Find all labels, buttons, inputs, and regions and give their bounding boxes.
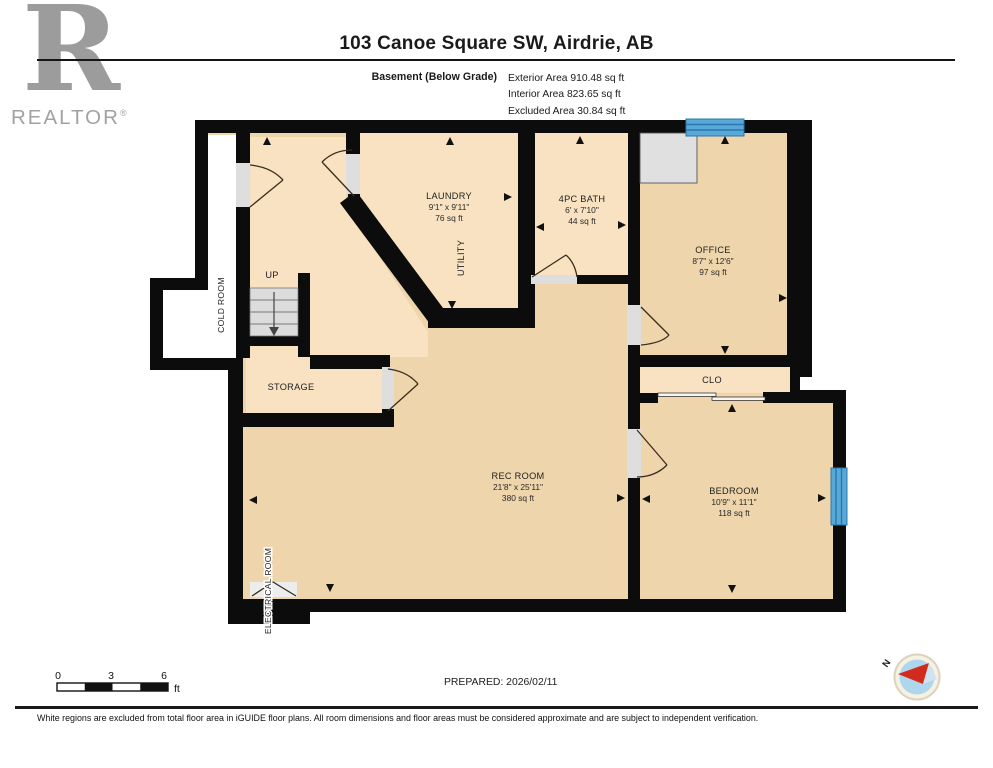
- stairs: [250, 288, 298, 336]
- prepared-date: PREPARED: 2026/02/11: [444, 677, 557, 688]
- exterior-area: Exterior Area 910.48 sq ft: [508, 71, 625, 87]
- compass-north-label: N: [880, 657, 893, 669]
- realtor-logo: R REALTOR®: [6, 0, 136, 140]
- scale-bar: 0 3 6 ft: [55, 670, 180, 695]
- wall-storage-door-stub: [382, 407, 394, 427]
- office-area: 97 sq ft: [699, 267, 727, 277]
- floorplan-page: R REALTOR® 103 Canoe Square SW, Airdrie,…: [0, 0, 993, 768]
- scale-tick-3: 3: [108, 670, 114, 682]
- wall-stairs-right: [298, 273, 310, 357]
- scale-bar-segment: [140, 683, 168, 691]
- scale-bar-segment: [85, 683, 113, 691]
- scale-tick-0: 0: [55, 670, 61, 682]
- bedroom-label: BEDROOM: [709, 486, 759, 496]
- wall-laundry-bath: [518, 120, 535, 316]
- electrical-door-opening: [250, 582, 297, 597]
- office-label: OFFICE: [695, 245, 731, 255]
- excluded-area: Excluded Area 30.84 sq ft: [508, 104, 625, 120]
- wall-storage-bottom: [232, 413, 394, 427]
- mechanical-box: [640, 133, 697, 183]
- page-title: 103 Canoe Square SW, Airdrie, AB: [0, 33, 993, 55]
- interior-area: Interior Area 823.65 sq ft: [508, 87, 625, 103]
- bedroom-dims: 10'9" x 11'1": [711, 497, 756, 507]
- office-door: [627, 305, 641, 345]
- laundry-label: LAUNDRY: [426, 191, 472, 201]
- bath-floor: [535, 133, 628, 275]
- bath-label: 4PC BATH: [559, 194, 606, 204]
- bath-dims: 6' x 7'10": [565, 205, 599, 215]
- area-summary: Exterior Area 910.48 sq ft Interior Area…: [508, 71, 625, 120]
- bath-area: 44 sq ft: [568, 216, 596, 226]
- bath-door: [531, 275, 577, 284]
- laundry-door: [346, 154, 360, 194]
- wall-office-bottom: [640, 355, 790, 367]
- storage-label: STORAGE: [268, 382, 315, 392]
- scale-unit: ft: [174, 683, 180, 695]
- registered-mark: ®: [120, 108, 127, 118]
- clo-sliding-panel-1: [658, 393, 716, 396]
- office-dims: 8'7" x 12'6": [692, 256, 733, 266]
- rec-room-area: 380 sq ft: [502, 493, 535, 503]
- realtor-logo-wordmark: REALTOR®: [11, 106, 127, 130]
- wall-hall-laundry: [346, 120, 360, 154]
- cold-room-door: [236, 163, 250, 207]
- storage-door: [382, 367, 394, 409]
- clo-label: CLO: [702, 375, 722, 385]
- wall-center-vertical: [628, 133, 640, 599]
- utility-label: UTILITY: [456, 240, 466, 276]
- wall-storage-top: [310, 355, 390, 369]
- bedroom-area: 118 sq ft: [718, 508, 750, 518]
- office-window: [686, 119, 744, 136]
- stairs-up-label: UP: [265, 270, 278, 280]
- disclaimer-text: White regions are excluded from total fl…: [37, 713, 967, 723]
- wall-clo-stub-right: [763, 392, 790, 403]
- scale-tick-6: 6: [161, 670, 167, 682]
- rec-room-label: REC ROOM: [492, 471, 545, 481]
- floor-plan: LAUNDRY 9'1" x 9'11" 76 sq ft UTILITY 4P…: [0, 0, 993, 768]
- cold-room-label: COLD ROOM: [216, 277, 226, 333]
- wall-clo-stub-left: [638, 393, 658, 403]
- bedroom-door: [627, 429, 641, 478]
- footer-divider: [15, 706, 978, 709]
- compass: N: [880, 655, 939, 700]
- laundry-area: 76 sq ft: [435, 213, 463, 223]
- clo-sliding-panel-2: [712, 397, 765, 400]
- wall-stairs-bottom: [246, 336, 298, 346]
- rec-room-dims: 21'8" x 25'11": [493, 482, 543, 492]
- floor-label: Basement (Below Grade): [260, 71, 497, 83]
- bedroom-window: [831, 468, 847, 525]
- header-divider: [37, 59, 955, 61]
- laundry-dims: 9'1" x 9'11": [429, 202, 470, 212]
- electrical-room-label: ELECTRICAL ROOM: [263, 548, 273, 634]
